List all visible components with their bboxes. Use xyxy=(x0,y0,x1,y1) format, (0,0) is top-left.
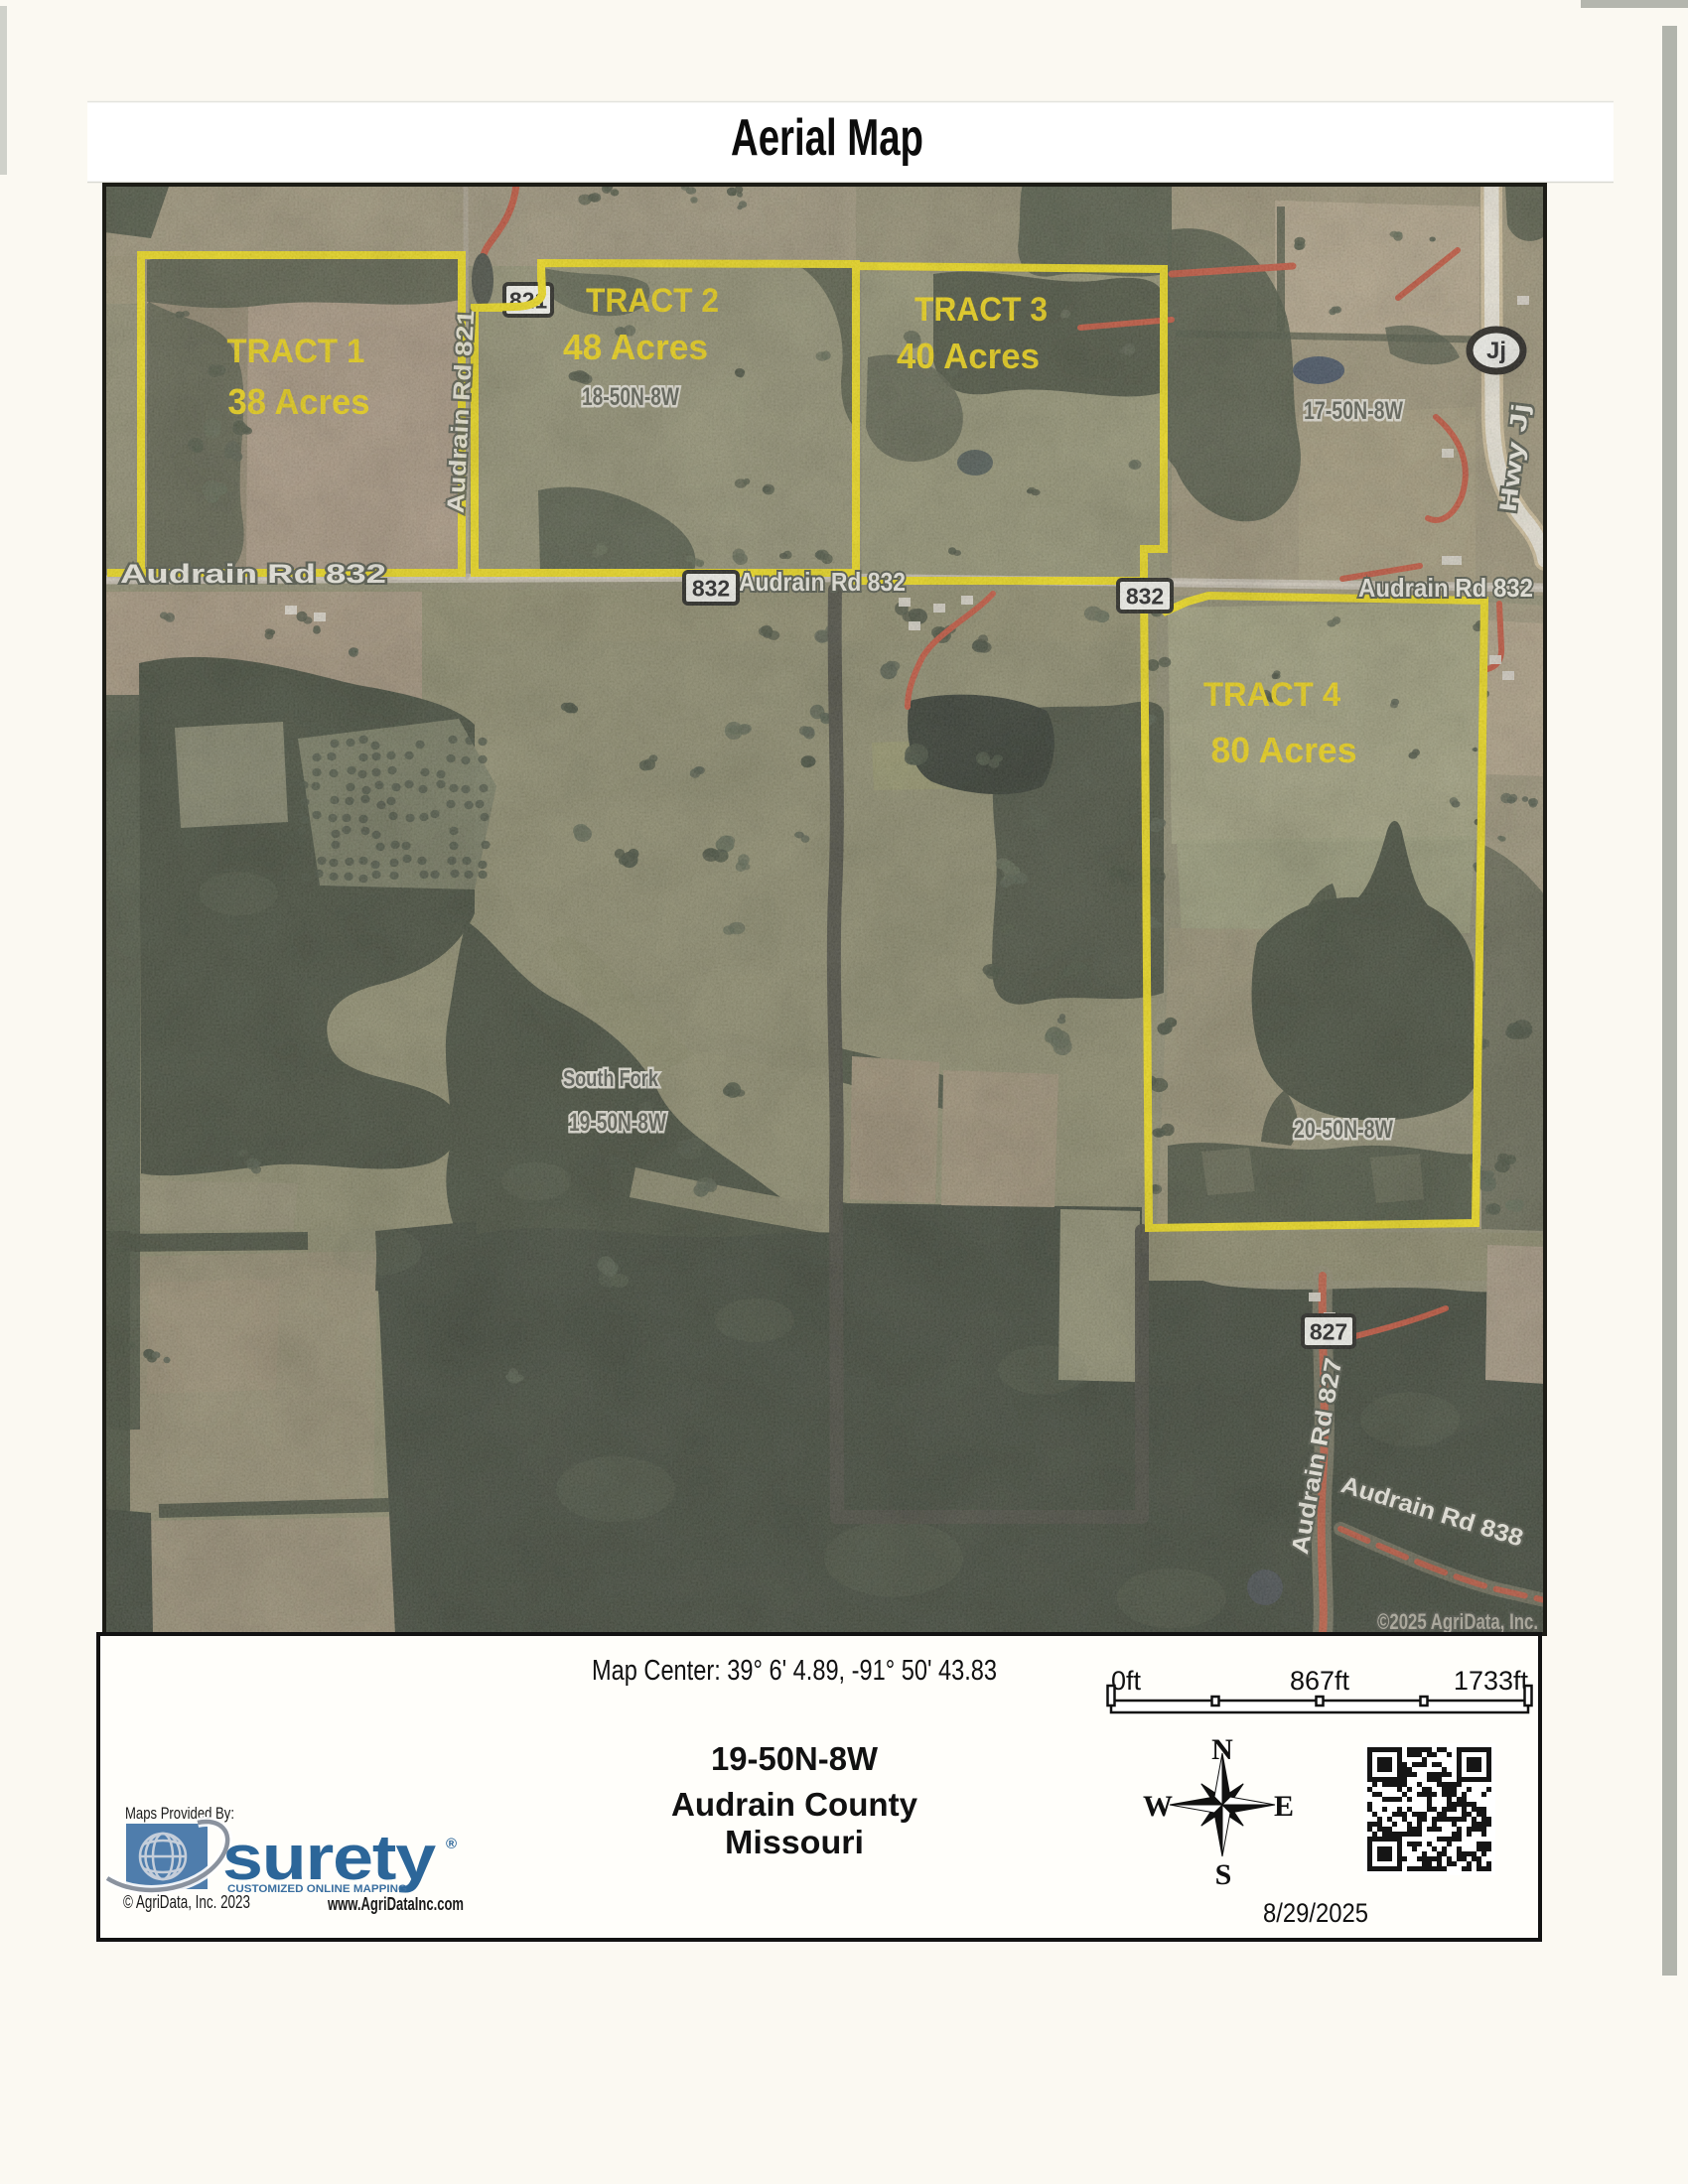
svg-text:N: N xyxy=(1211,1733,1233,1766)
svg-text:867ft: 867ft xyxy=(1290,1666,1350,1696)
svg-text:19-50N-8W: 19-50N-8W xyxy=(711,1740,879,1777)
svg-text:© AgriData, Inc. 2023: © AgriData, Inc. 2023 xyxy=(123,1892,250,1912)
svg-text:W: W xyxy=(1143,1790,1173,1823)
svg-text:Map Center: 39° 6' 4.89, -91°: Map Center: 39° 6' 4.89, -91° 50' 43.83 xyxy=(592,1655,997,1687)
svg-text:®: ® xyxy=(446,1836,457,1852)
svg-text:E: E xyxy=(1274,1790,1294,1823)
svg-text:Missouri: Missouri xyxy=(725,1824,864,1860)
svg-text:Audrain County: Audrain County xyxy=(671,1786,918,1823)
svg-text:1733ft: 1733ft xyxy=(1454,1666,1529,1696)
svg-text:www.AgriDataInc.com: www.AgriDataInc.com xyxy=(327,1894,464,1914)
svg-text:8/29/2025: 8/29/2025 xyxy=(1263,1898,1368,1928)
svg-text:S: S xyxy=(1215,1858,1232,1891)
svg-text:Aerial Map: Aerial Map xyxy=(731,109,923,167)
